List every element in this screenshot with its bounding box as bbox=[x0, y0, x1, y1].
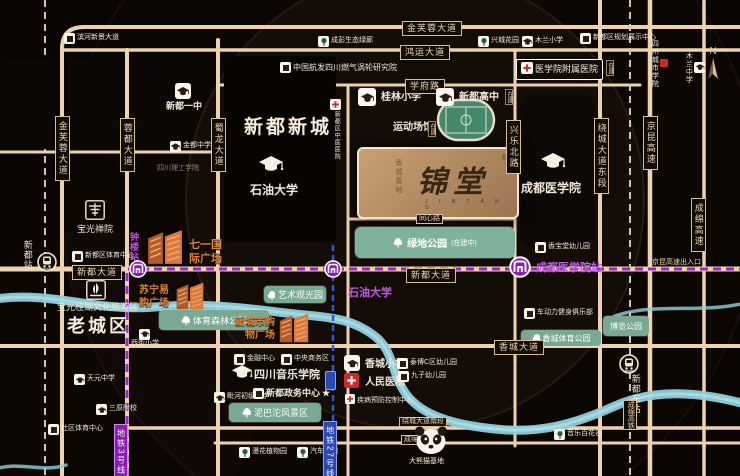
compass-icon: N bbox=[703, 46, 723, 86]
taibo-kindergarten-label: 泰博C区幼儿园 bbox=[397, 358, 457, 369]
cbd-icon bbox=[281, 354, 292, 365]
mulan-primary-label: 木兰小学 bbox=[522, 36, 563, 47]
university-icon bbox=[258, 155, 284, 177]
planned-station-marker bbox=[325, 371, 336, 390]
school-icon bbox=[344, 355, 360, 375]
suning-plaza-label: 苏宁易购广场 bbox=[139, 285, 171, 310]
binhe-scenic-label: 滨河新景大道 bbox=[64, 33, 119, 44]
nibatuo-scenic-area: 泥巴沱风景区 bbox=[229, 403, 321, 422]
cbd-label: 中央商务区 bbox=[281, 354, 329, 365]
road-label-xindu-center: 新都大道 bbox=[406, 268, 456, 283]
road-label-tongxin: 同心路 bbox=[416, 214, 443, 224]
panda-icon bbox=[413, 425, 449, 460]
eco-corridor-label: 成彭生态绿廊 bbox=[318, 36, 373, 47]
metro-station-shiyou-icon bbox=[324, 260, 342, 283]
new-town-title: 新都新城 bbox=[244, 112, 332, 139]
park-icon bbox=[297, 447, 308, 458]
road-label-raocheng-east: 绕城大道东段 bbox=[594, 118, 609, 194]
metro-station-zhonglou-icon bbox=[129, 260, 147, 283]
school-icon bbox=[96, 404, 107, 415]
park-icon bbox=[318, 36, 329, 47]
tree-icon bbox=[267, 290, 275, 300]
road-icon bbox=[64, 33, 75, 44]
gov-center-label: 新都政务中心★ bbox=[253, 388, 330, 399]
tree-icon bbox=[181, 315, 190, 326]
school-icon bbox=[358, 88, 376, 110]
mall-building-icon bbox=[274, 312, 314, 349]
jindu-middle-school-label: 金都中学 bbox=[170, 141, 211, 152]
road-label-hongyun: 鸿运大道 bbox=[400, 45, 450, 60]
road-label-shulong: 蜀龙大道 bbox=[211, 118, 226, 172]
metro-line27-label: 地铁27号线 bbox=[323, 421, 337, 476]
finance-center-label: 金融中心 bbox=[234, 354, 275, 365]
ligong-college-label: 四川理工学院 bbox=[157, 165, 199, 173]
train-station-icon bbox=[37, 252, 57, 277]
university-icon bbox=[231, 364, 253, 384]
tree-icon bbox=[242, 407, 251, 418]
chengshi-college-label: 四川城市学院 bbox=[650, 40, 668, 88]
kindergarten-icon bbox=[535, 242, 546, 253]
metro-station-shiyou-label: 石油大学 bbox=[348, 284, 392, 300]
rail-label-chengmian: 成绵高铁 bbox=[623, 400, 637, 430]
xiangbao-kindergarten-label: 香宝堂幼儿园 bbox=[535, 242, 590, 253]
road-label-rongdu: 蓉都大道 bbox=[120, 118, 135, 172]
metro-station-zhonglou-label: 钟楼站 bbox=[128, 232, 141, 262]
jingkun-exit-label: 京昆高速出入口 bbox=[652, 259, 701, 267]
xindu-high-school-label: 新都高中 bbox=[459, 92, 499, 104]
metro-line3-label: 地铁3号线 bbox=[114, 424, 128, 476]
newcity-mall-label: 新城市购物广场 bbox=[231, 317, 275, 342]
institute-icon bbox=[280, 62, 291, 73]
qiyi-plaza-label: 七一国际广场 bbox=[189, 239, 227, 267]
park-icon bbox=[554, 429, 565, 440]
sports-center-label: 新都区体育中心 bbox=[72, 251, 134, 262]
guilin-primary-label: 桂林小学 bbox=[381, 92, 421, 104]
city-block bbox=[68, 57, 120, 149]
aero-institute-label: 中国航发四川燃气涡轮研究院 bbox=[280, 62, 397, 73]
university-icon bbox=[540, 152, 566, 174]
jiuzi-kindergarten-label: 九子幼儿园 bbox=[398, 371, 446, 382]
under-construction-note: 在建 bbox=[428, 121, 436, 137]
project-side-text: 香城置地 bbox=[393, 159, 403, 195]
school-icon bbox=[522, 36, 533, 47]
college-icon bbox=[660, 59, 668, 67]
road-label-xiangcheng: 香城大道 bbox=[494, 340, 544, 355]
metro-station-cmc-icon bbox=[509, 256, 531, 283]
greenland-park: 绿地公园 (在建中) bbox=[355, 227, 515, 258]
xingcheng-garden-label: 兴城花园 bbox=[478, 36, 519, 47]
road-label-jingkun: 京昆高速 bbox=[643, 116, 658, 170]
venue-icon bbox=[48, 424, 59, 435]
park-icon bbox=[239, 447, 250, 458]
old-town-title: 老城区 bbox=[67, 312, 130, 338]
school-icon bbox=[214, 392, 225, 403]
metro-station-cmc-label: 成都医学院站 bbox=[536, 259, 602, 275]
location-map: 金芙蓉大道 滨河新景大道 成彭生态绿廊 兴城花园 木兰小学 新都区规划展示中心 … bbox=[0, 0, 740, 476]
school-icon bbox=[436, 88, 454, 110]
sports-arena-label: 运动场馆 bbox=[393, 122, 433, 134]
school-icon bbox=[175, 83, 191, 103]
bolan-park: 博览公园 bbox=[603, 316, 649, 336]
train-station-icon bbox=[619, 354, 639, 379]
sail-icon bbox=[86, 280, 106, 305]
gov-icon bbox=[253, 388, 264, 399]
new-town-block bbox=[224, 56, 336, 242]
baoguang-temple-label: 宝光禅院 bbox=[77, 224, 113, 235]
art-park: 艺术观光园 bbox=[264, 286, 326, 303]
school-icon bbox=[170, 141, 181, 152]
hospital-cross-icon bbox=[330, 97, 341, 115]
road-label-jinfurong: 金芙蓉大道 bbox=[402, 21, 462, 36]
cmc-university-label: 成都医学院 bbox=[521, 181, 581, 195]
kindergarten-icon bbox=[397, 358, 408, 369]
cdc-label: 疾病预防控制中心 bbox=[345, 394, 413, 407]
tcm-hospital-label: 新都区中医医院 bbox=[332, 111, 339, 160]
gym-icon bbox=[524, 308, 535, 319]
petroleum-university-label: 石油大学 bbox=[250, 183, 298, 197]
sccm-university-label: 四川音乐学院 bbox=[254, 369, 320, 382]
tianyuan-middle-label: 天元中学 bbox=[74, 374, 115, 385]
kindergarten-icon bbox=[398, 371, 409, 382]
under-construction-note: 在建 bbox=[505, 89, 513, 105]
xindu-railway-station-label: 新都站 bbox=[22, 240, 33, 270]
venue-icon bbox=[72, 251, 83, 262]
mall-building-icon bbox=[142, 228, 188, 271]
road-label-xinglebei: 兴乐北路 bbox=[506, 120, 521, 174]
tree-icon bbox=[393, 237, 403, 248]
road-label-chengmian-expwy: 成绵高速 bbox=[691, 198, 706, 252]
hospital-cross-icon bbox=[345, 394, 355, 407]
project-logo-latin: J I N T A N G bbox=[425, 199, 517, 211]
finance-icon bbox=[234, 354, 245, 365]
building-icon bbox=[580, 33, 591, 44]
community-center-label: 社区体育中心 bbox=[48, 424, 103, 435]
road-label-xindu-west: 新都大道 bbox=[72, 265, 122, 280]
temple-icon bbox=[85, 200, 105, 225]
school-icon bbox=[139, 326, 150, 344]
baihuagu-label: 音乐百花谷 bbox=[554, 429, 602, 440]
planning-center-label: 新都区规划展示中心 bbox=[580, 33, 656, 44]
project-logo: 锦堂 bbox=[417, 157, 489, 201]
manhua-garden-label: 漫花植物园 bbox=[239, 447, 287, 458]
sanyuan-school-label: 三原附校 bbox=[96, 404, 137, 415]
hospital-icon bbox=[344, 373, 359, 393]
project-plot: 香城置地 锦堂 ® J I N T A N G bbox=[357, 147, 519, 219]
city-block bbox=[0, 57, 55, 149]
school-icon bbox=[74, 374, 85, 385]
affiliated-hospital-label: 医学院附属医院 bbox=[516, 59, 603, 80]
under-construction-note: 在建 bbox=[606, 60, 614, 76]
hospital-cross-icon bbox=[521, 62, 533, 77]
gym-label: 车动力健身俱乐部 bbox=[524, 308, 594, 319]
road-label-jinfurong-west: 金芙蓉大道 bbox=[55, 116, 70, 181]
park-icon bbox=[478, 36, 489, 47]
